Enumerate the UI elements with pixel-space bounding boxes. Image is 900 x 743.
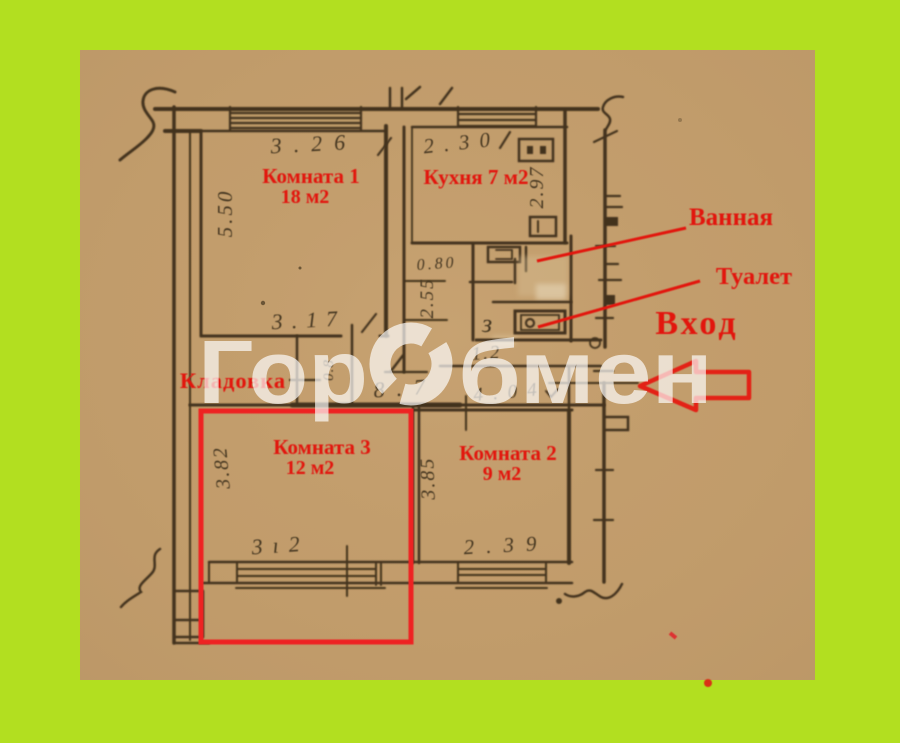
svg-text:Комната 1: Комната 1 — [262, 164, 359, 188]
svg-text:9 м2: 9 м2 — [483, 463, 522, 485]
svg-text:Кухня 7 м2: Кухня 7 м2 — [424, 165, 529, 189]
svg-text:0.80: 0.80 — [416, 254, 457, 274]
svg-text:бмен: бмен — [458, 323, 713, 423]
svg-text:18 м2: 18 м2 — [281, 186, 330, 208]
svg-text:2.55: 2.55 — [417, 277, 438, 318]
svg-text:3ı2: 3ı2 — [250, 530, 311, 559]
svg-text:Туалет: Туалет — [716, 263, 792, 290]
svg-text:5.50: 5.50 — [213, 189, 237, 238]
svg-text:12 м2: 12 м2 — [286, 457, 335, 479]
svg-text:2.97: 2.97 — [526, 166, 548, 209]
svg-text:Ванная: Ванная — [689, 204, 773, 231]
svg-text:3.85: 3.85 — [416, 456, 440, 501]
svg-text:Комната 2: Комната 2 — [459, 441, 556, 465]
svg-text:Комната 3: Комната 3 — [273, 435, 370, 459]
svg-text:3.26: 3.26 — [269, 129, 358, 159]
svg-text:3.82: 3.82 — [209, 445, 235, 491]
svg-text:Гор: Гор — [198, 323, 368, 423]
svg-text:2.39: 2.39 — [463, 531, 549, 559]
